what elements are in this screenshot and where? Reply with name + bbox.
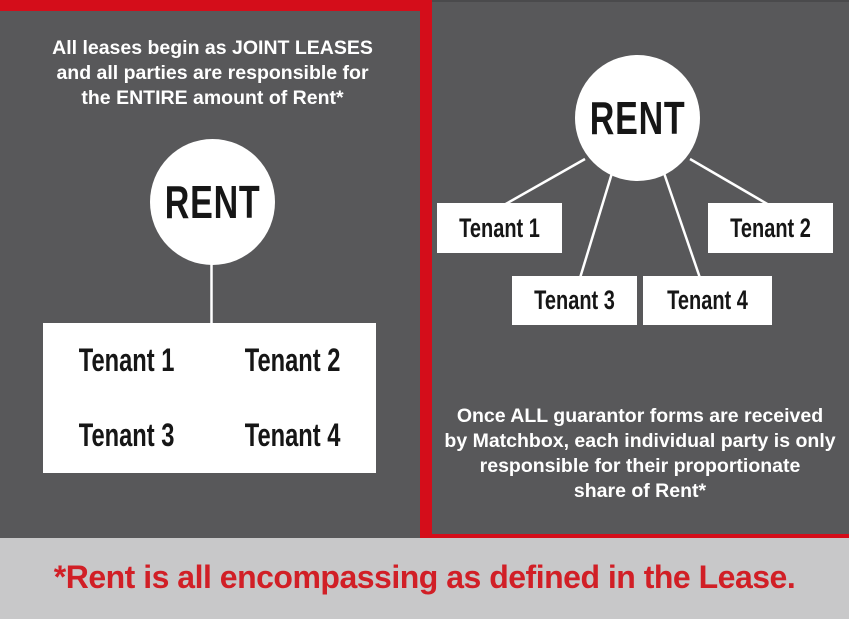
- caption-line: responsible for their proportionate: [437, 454, 843, 479]
- tenant-label-4: Tenant 4: [667, 285, 748, 316]
- tenant-label-2: Tenant 2: [730, 213, 811, 244]
- tenant-label-2: Tenant 2: [245, 342, 341, 379]
- rent-node-right: RENT: [575, 55, 700, 181]
- heading-line: All leases begin as JOINT LEASES: [25, 36, 400, 61]
- tenant-label-4: Tenant 4: [245, 417, 341, 454]
- tenant-box-4: Tenant 4: [643, 276, 772, 325]
- red-border-top: [0, 0, 432, 11]
- tenant-label-3: Tenant 3: [534, 285, 615, 316]
- right-panel-caption: Once ALL guarantor forms are received by…: [437, 404, 843, 504]
- caption-line: by Matchbox, each individual party is on…: [437, 429, 843, 454]
- infographic-canvas: All leases begin as JOINT LEASES and all…: [0, 0, 849, 619]
- footer-bar: *Rent is all encompassing as defined in …: [0, 538, 849, 619]
- rent-node-label: RENT: [165, 175, 261, 229]
- red-border-divider: [420, 0, 432, 545]
- footnote-text: *Rent is all encompassing as defined in …: [0, 559, 849, 596]
- tenant-box-1: Tenant 1: [437, 203, 562, 253]
- left-panel-heading: All leases begin as JOINT LEASES and all…: [25, 36, 400, 111]
- heading-line: and all parties are responsible for: [25, 61, 400, 86]
- tenant-label-3: Tenant 3: [78, 417, 174, 454]
- rent-node-label: RENT: [590, 91, 686, 145]
- tenant-box-3: Tenant 3: [512, 276, 637, 325]
- tenant-label-1: Tenant 1: [78, 342, 174, 379]
- caption-line: Once ALL guarantor forms are received: [437, 404, 843, 429]
- rent-node-left: RENT: [150, 139, 275, 265]
- heading-line: the ENTIRE amount of Rent*: [25, 86, 400, 111]
- joint-tenants-box: Tenant 1 Tenant 2 Tenant 3 Tenant 4: [43, 323, 376, 473]
- tenant-label-1: Tenant 1: [459, 213, 540, 244]
- caption-line: share of Rent*: [437, 479, 843, 504]
- top-edge-shadow: [430, 0, 849, 2]
- tenant-box-2: Tenant 2: [708, 203, 833, 253]
